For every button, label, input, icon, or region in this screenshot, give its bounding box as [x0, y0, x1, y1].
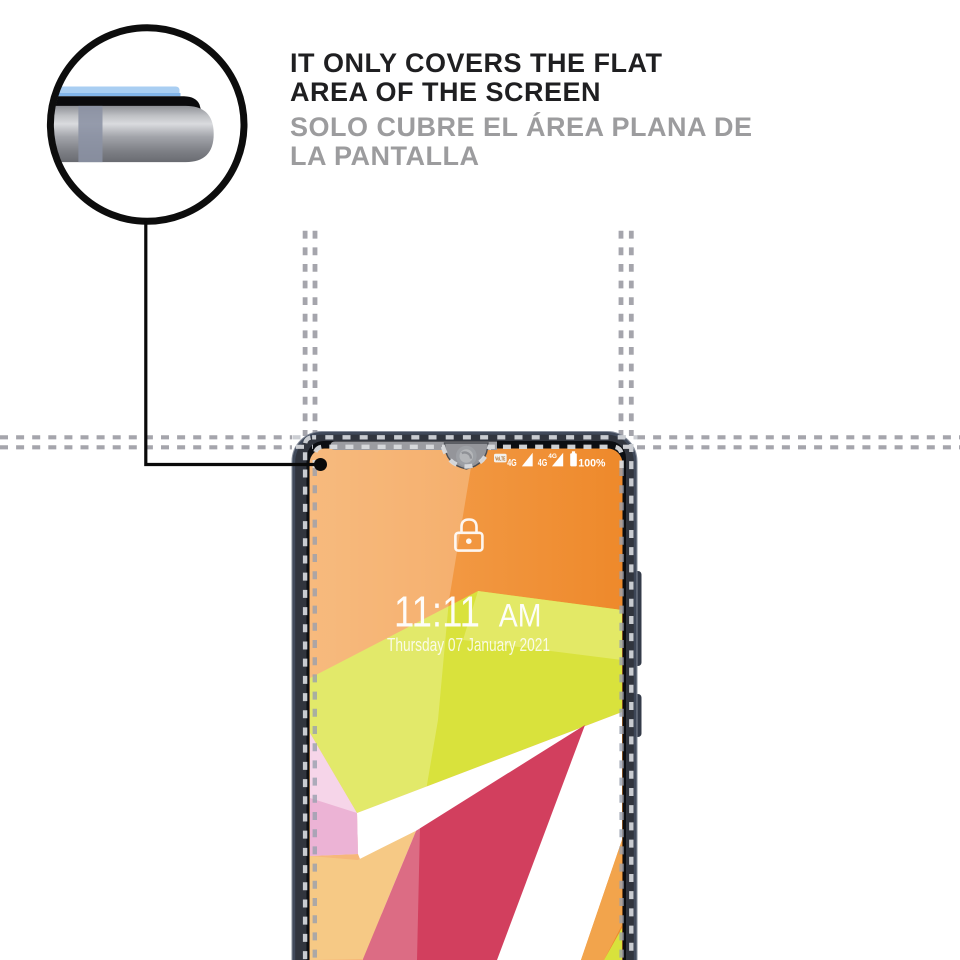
svg-text:Thursday 07 January 2021: Thursday 07 January 2021 [387, 635, 550, 655]
svg-text:4G: 4G [507, 458, 517, 469]
svg-text:100%: 100% [578, 457, 606, 469]
svg-text:AM: AM [499, 598, 542, 634]
svg-text:11:11: 11:11 [394, 589, 480, 637]
svg-text:4G: 4G [548, 453, 557, 460]
svg-text:4G: 4G [538, 458, 548, 469]
svg-text:VoLTE: VoLTE [495, 457, 506, 463]
